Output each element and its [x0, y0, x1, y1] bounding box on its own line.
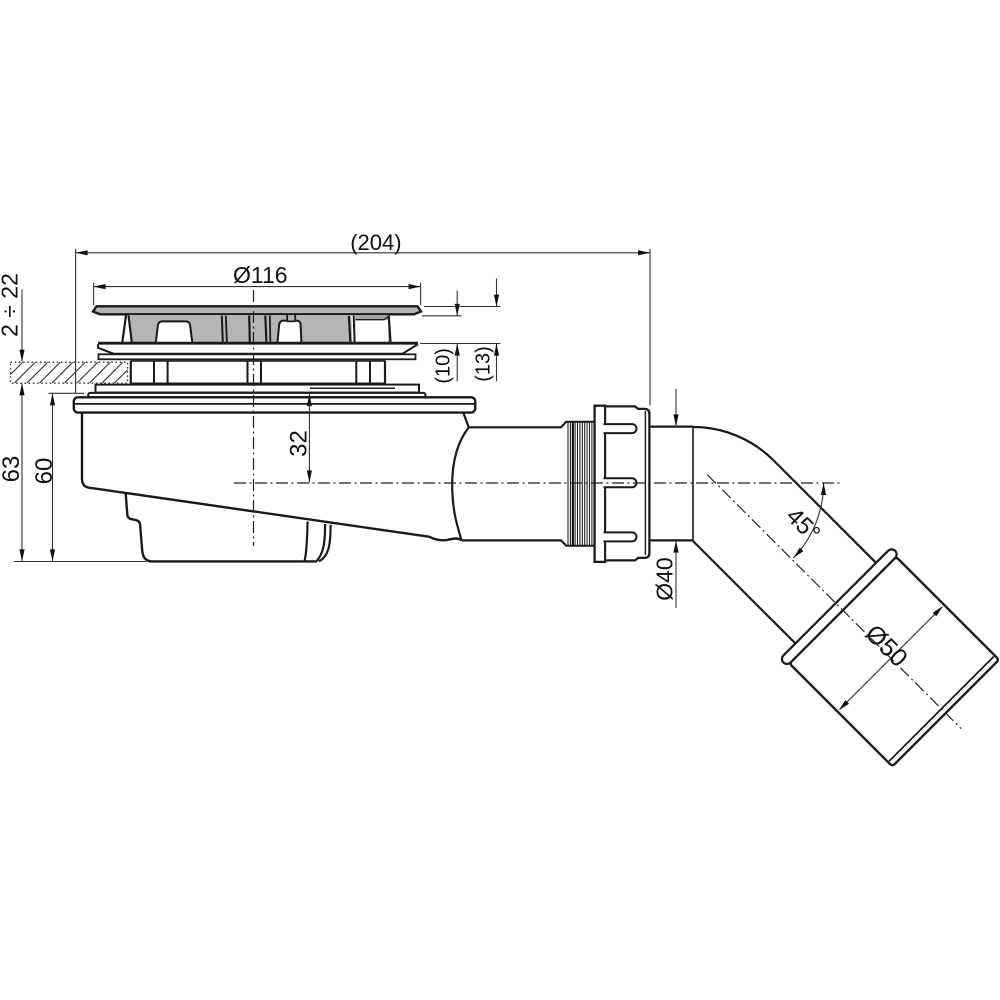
svg-text:60: 60 — [31, 458, 58, 485]
svg-text:(10): (10) — [433, 348, 455, 384]
svg-text:32: 32 — [286, 430, 313, 457]
svg-text:2 ÷ 22: 2 ÷ 22 — [0, 273, 23, 337]
svg-text:Ø40: Ø40 — [652, 557, 678, 600]
svg-text:Ø116: Ø116 — [233, 262, 288, 288]
svg-text:(204): (204) — [350, 230, 401, 255]
svg-text:(13): (13) — [473, 346, 495, 382]
svg-text:63: 63 — [0, 456, 25, 483]
